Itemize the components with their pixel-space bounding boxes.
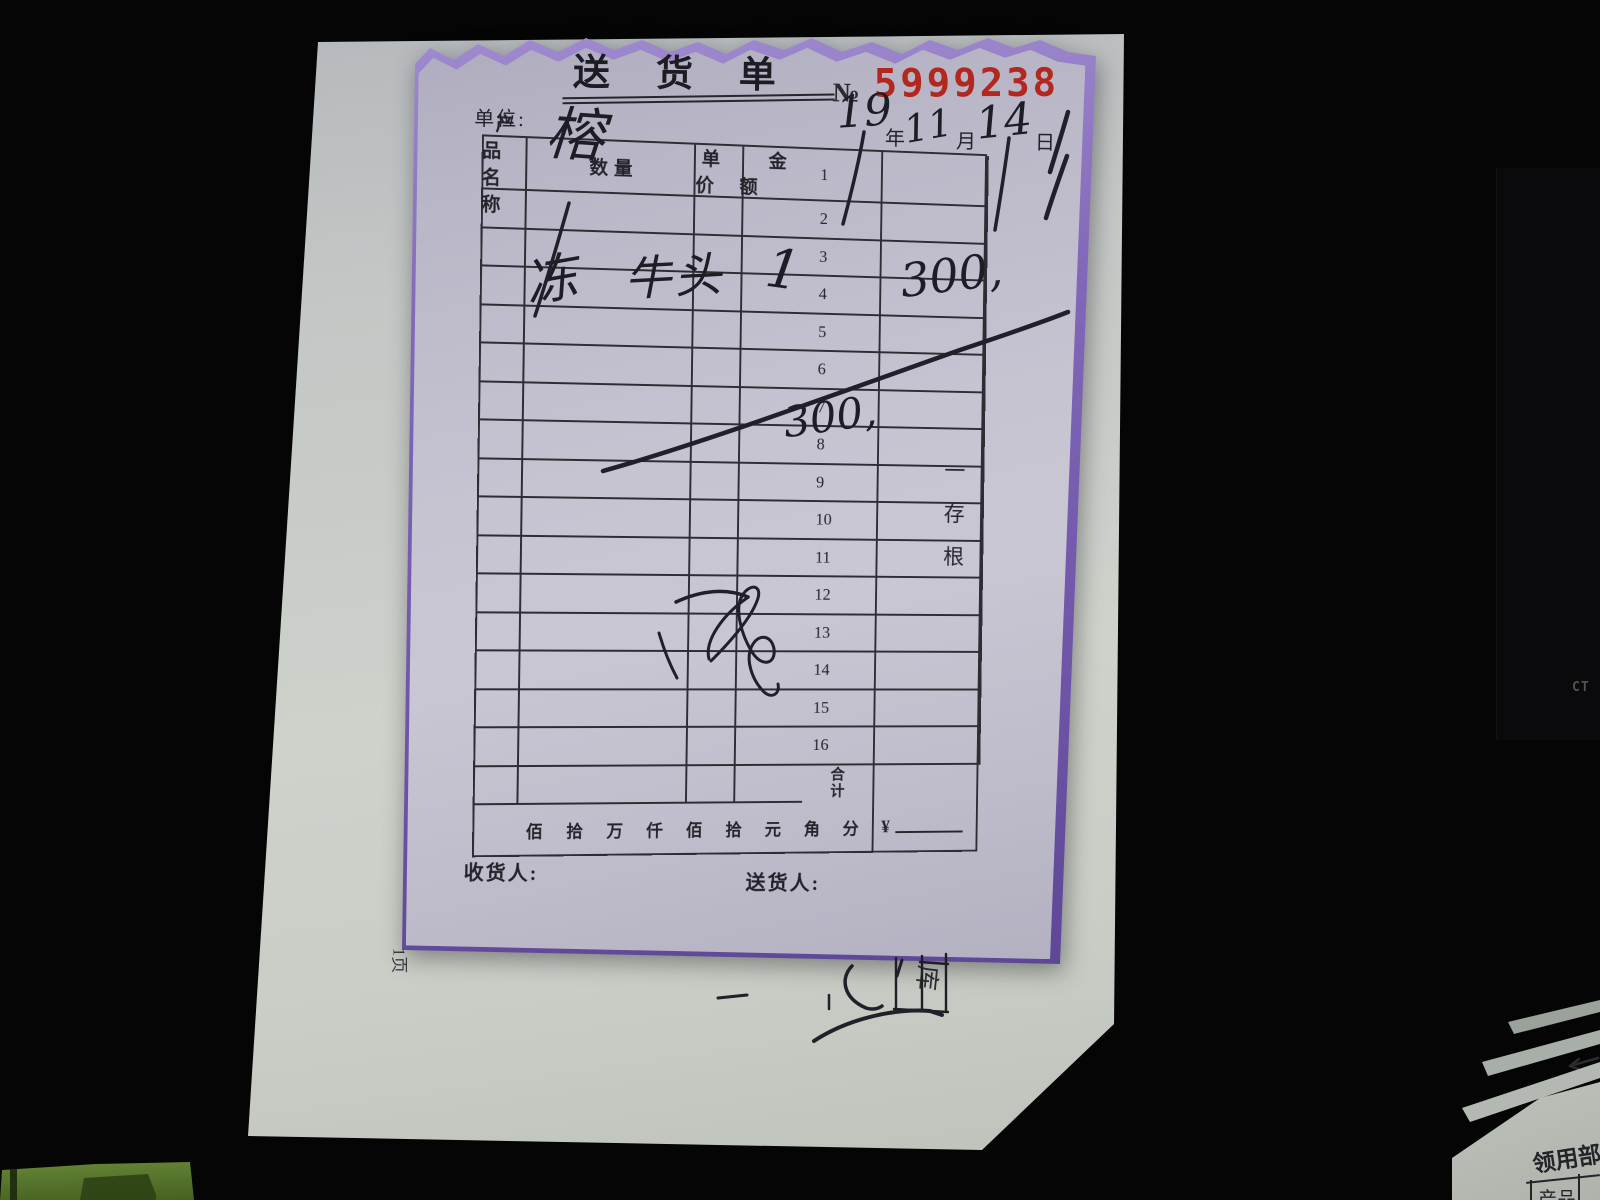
row-cell [741,350,808,389]
row-cell [525,306,694,349]
row-number: 1 [811,149,884,203]
header-qty: 数量 [527,138,696,197]
row-number: 8 [807,427,880,466]
row-number: 10 [806,502,879,540]
row-cell [691,500,740,538]
row-cell [688,690,737,728]
row-cell [478,497,522,536]
row-cell [692,424,741,463]
row-cell [476,651,520,690]
row-number: 12 [805,577,878,615]
row-cell [523,460,692,501]
row-cell [687,765,736,803]
row-cell [879,428,985,467]
background-ct-text: CT [1572,680,1590,695]
row-cell [475,767,519,806]
delivery-note-paper: 送货单 № 5999238 单位: 年 月 日 序号产品名称单位数量单价金额12… [396,34,1102,964]
row-cell [688,652,737,690]
row-cell [875,690,981,727]
date-month-suffix: 月 [956,125,976,154]
row-cell [741,312,808,351]
row-cell [743,236,810,276]
row-cell [880,353,986,393]
row-number: 15 [803,690,876,728]
row-cell [739,463,806,502]
stack-table-vline-1 [1530,1180,1532,1200]
row-cell [737,614,804,652]
row-cell [737,652,805,690]
row-cell [481,305,525,345]
row-cell [690,538,739,576]
serial-number-label: № [832,77,860,108]
row-cell [480,382,524,421]
header-amount: 金额 [744,147,812,201]
row-cell [878,465,984,504]
row-number: 4 [809,276,881,316]
row-cell [739,501,806,540]
row-cell [691,462,740,501]
row-cell [523,421,692,462]
green-surface [0,1158,200,1200]
row-cell [519,728,688,767]
row-cell [881,278,987,318]
row-number: 6 [808,351,880,390]
row-cell [880,316,986,356]
row-cell [520,651,689,689]
document-title: 送货单 [573,42,823,99]
row-cell [482,228,526,268]
total-currency: ¥ [873,801,979,850]
row-number: 5 [808,314,880,353]
row-cell [476,690,520,728]
row-cell [518,766,687,805]
row-cell [482,266,526,306]
stack-paper-partial-text: 产品 [1538,1184,1576,1200]
row-cell [524,383,693,425]
row-cell [689,614,738,652]
row-cell [875,727,981,765]
row-cell [882,204,988,245]
row-cell [693,349,742,388]
row-cell [876,653,982,690]
row-cell [526,191,695,235]
total-digit-columns: 佰拾万仟佰拾元角分 [518,802,874,855]
row-number: 7 [807,389,879,428]
row-cell [479,459,523,498]
row-cell [521,613,690,652]
row-cell [526,229,695,272]
row-cell [743,199,810,239]
header-price: 单价 [695,145,744,199]
row-cell [878,503,984,542]
items-grid: 序号产品名称单位数量单价金额12345678910111213141516合计佰… [472,134,987,857]
green-surface-shadow [80,1174,156,1200]
row-cell [478,536,522,575]
row-cell [522,498,691,538]
date-day-suffix: 日 [1035,126,1055,155]
row-cell [481,343,525,382]
row-cell [736,728,804,766]
receiver-label: 收货人: [464,856,539,886]
row-cell [736,690,804,728]
row-cell [690,576,739,614]
note-content: 送货单 № 5999238 单位: 年 月 日 序号产品名称单位数量单价金额12… [384,33,1103,973]
row-number: 11 [805,540,878,578]
row-cell [519,690,688,728]
row-number: 13 [804,615,877,653]
row-cell [525,268,694,311]
background-dark-panel [1496,168,1600,740]
row-cell [877,578,983,616]
row-cell [693,311,742,350]
row-number: 2 [810,201,882,241]
row-cell [882,152,988,207]
row-cell [692,387,741,426]
row-number: 3 [809,239,881,279]
row-cell [738,539,805,577]
serial-number-value: 5999238 [874,61,1060,107]
green-surface-notch [10,1162,17,1200]
row-cell [477,574,521,613]
row-cell [524,344,693,386]
row-cell [879,391,985,430]
row-number: 16 [803,727,876,765]
row-cell [687,728,736,766]
row-cell [475,728,519,767]
stack-table-vline-2 [1578,1174,1580,1200]
total-label: 合计 [802,765,875,803]
row-cell [738,577,805,615]
sender-label: 送货人: [745,866,820,896]
row-cell [479,420,523,459]
row-cell [735,765,803,803]
row-cell [740,388,807,427]
row-cell [742,274,809,314]
row-cell [876,615,982,653]
row-cell [483,189,527,229]
row-cell [881,241,987,282]
row-cell [477,613,521,652]
row-cell [521,575,690,614]
total-amount-line [895,819,963,833]
paper-stack: 领用部 产品 [1440,990,1600,1200]
photo-scene: CT 1页 送货单 № 5999238 单位: 年 月 日 序号产品名称单位数量… [0,0,1600,1200]
row-cell [695,197,744,236]
row-number: 9 [806,464,879,503]
header-product: 产品名称 [483,136,527,191]
row-number: 14 [804,652,877,690]
row-cell [694,235,743,274]
row-cell [877,540,983,578]
date-year-suffix: 年 [885,122,905,151]
stub-vertical-label: 一存根 [943,455,966,571]
row-cell [694,273,743,312]
row-cell [522,536,691,576]
row-cell [740,425,807,464]
